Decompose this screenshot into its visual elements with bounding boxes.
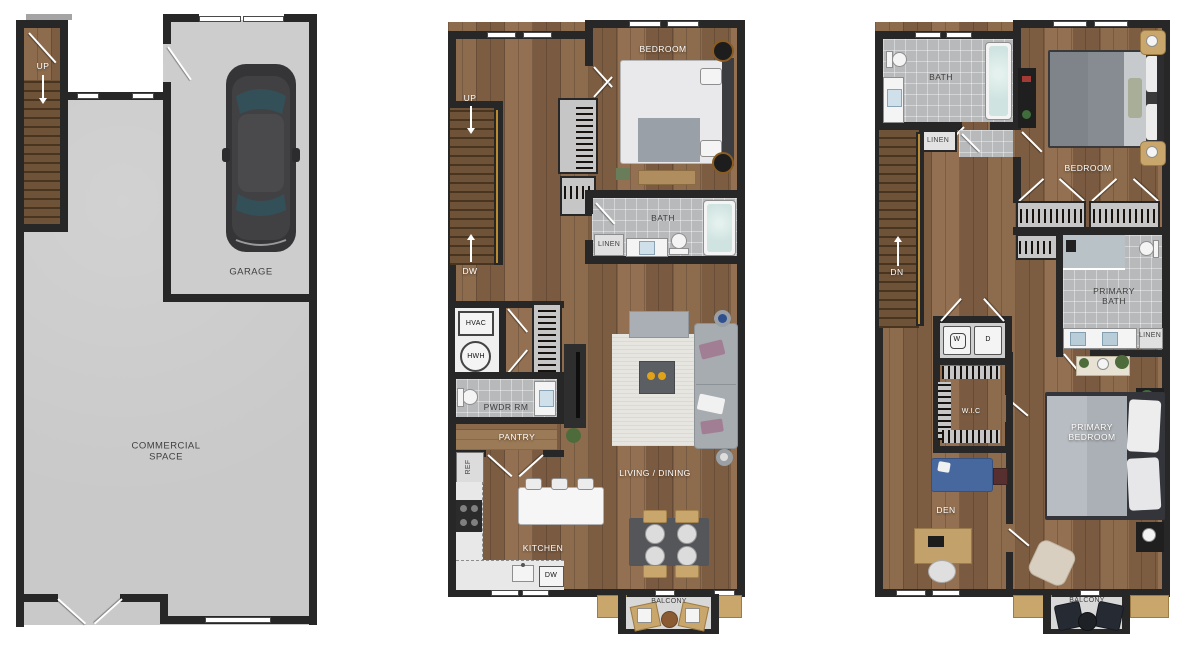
closet-hangers [1020,209,1082,223]
bathtub-water [989,46,1008,116]
dryer-label: D [985,336,990,344]
side-table [993,468,1008,485]
balcony-table [1078,612,1097,631]
plant [1079,358,1089,368]
wall [1122,594,1130,634]
lamp [1146,35,1158,47]
vanity-sink [1102,332,1118,346]
primary-bath-label: PRIMARY BATH [1093,286,1135,306]
wic-label: W.I.C [962,408,981,416]
wall [1056,235,1063,355]
bed-duvet [1050,52,1088,146]
desk-chair [928,560,956,583]
closet-hangers [1093,209,1156,223]
hall-floor [959,130,1013,157]
bed-pillow [1127,457,1162,511]
down-arrow-icon [897,242,899,266]
primary-bedroom-label: PRIMARY BEDROOM [1068,422,1115,442]
window [896,590,926,596]
wall [1006,552,1013,597]
window [1053,21,1087,27]
closet-hangers [942,430,1000,443]
down-label: DN [890,267,903,277]
window [915,32,941,38]
wall [1013,20,1170,28]
mirror [1097,358,1109,370]
window [1094,21,1128,27]
linen-label: LINEN [927,137,949,145]
stairs-f3 [879,130,919,328]
laptop [928,536,944,547]
closet-hangers [942,366,1000,379]
balcony-label: BALCONY [1069,597,1105,605]
wall [1006,352,1013,524]
toilet [1139,241,1154,256]
bed-duvet [1087,396,1127,516]
wall [933,446,1012,453]
balcony-door [1080,590,1100,596]
wall [1056,350,1063,357]
window [932,590,960,596]
primary-bath-linen-label: LINEN [1139,332,1161,340]
bed-duvet [1047,396,1087,516]
washer-label: W [954,336,961,344]
balcony-chair [1094,601,1125,632]
plant [1115,355,1129,369]
floorplan-canvas: UP [0,0,1200,652]
lamp [1146,146,1158,158]
bed-duvet [1088,52,1124,146]
throw-pillow [937,461,951,473]
lamp [1142,528,1156,542]
toilet-tank [886,51,893,68]
wall [875,122,962,130]
headboard [1157,48,1164,150]
toilet-tank [1153,240,1159,258]
window [946,32,972,38]
wall [933,358,1012,365]
wall [1043,594,1051,634]
bedroom-label: BEDROOM [1064,163,1111,173]
wall [1013,157,1021,203]
bath-sink [887,89,902,107]
shower-fixture [1066,240,1076,252]
bed-pillow [1127,399,1162,453]
closet-hangers [1019,241,1055,254]
decor-books [1022,76,1031,82]
bath-label: BATH [929,72,953,82]
stair-rail-gold [918,134,920,324]
bed-pillow-sage [1128,78,1142,118]
vanity-sink [1070,332,1086,346]
toilet [892,52,907,67]
balcony-planter [1130,595,1169,618]
decor-plant [1022,110,1031,119]
floor-plan-3: BATH LINEN BEDROOM [0,0,1200,652]
den-label: DEN [936,505,955,515]
